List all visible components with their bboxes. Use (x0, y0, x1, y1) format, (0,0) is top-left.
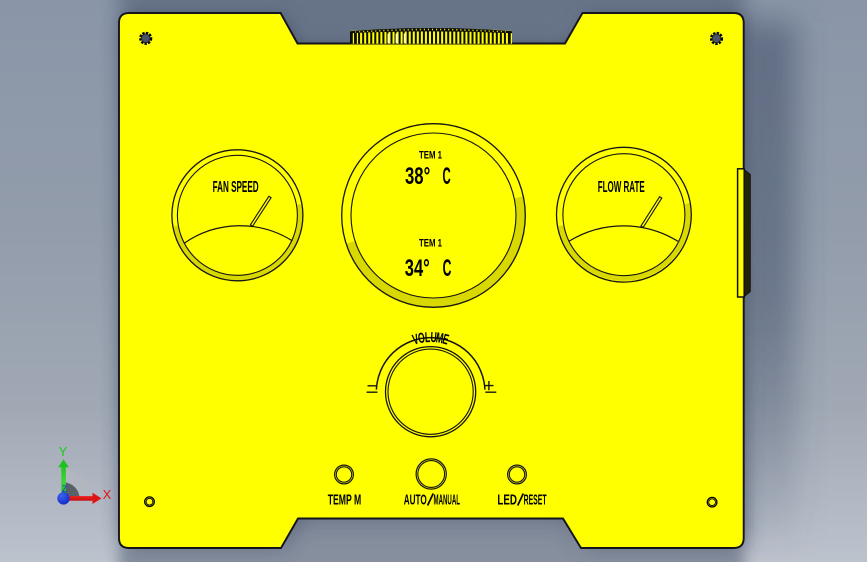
svg-text:C: C (443, 255, 452, 282)
svg-text:TEM 1: TEM 1 (419, 149, 442, 161)
svg-text:C: C (443, 163, 451, 190)
svg-text:LED: LED (497, 492, 517, 509)
svg-text:FAN SPEED: FAN SPEED (213, 179, 259, 196)
svg-text:TEMP M: TEMP M (328, 492, 362, 509)
svg-text:X: X (103, 487, 112, 502)
svg-text:AUTO: AUTO (404, 492, 427, 509)
svg-text:RESET: RESET (524, 492, 547, 509)
svg-text:FLOW RATE: FLOW RATE (598, 179, 645, 196)
svg-text:Y: Y (59, 444, 68, 459)
svg-text:MANUAL: MANUAL (434, 492, 461, 509)
svg-text:TEM 1: TEM 1 (419, 237, 442, 249)
svg-text:34°: 34° (405, 255, 430, 282)
svg-text:38°: 38° (405, 163, 430, 190)
